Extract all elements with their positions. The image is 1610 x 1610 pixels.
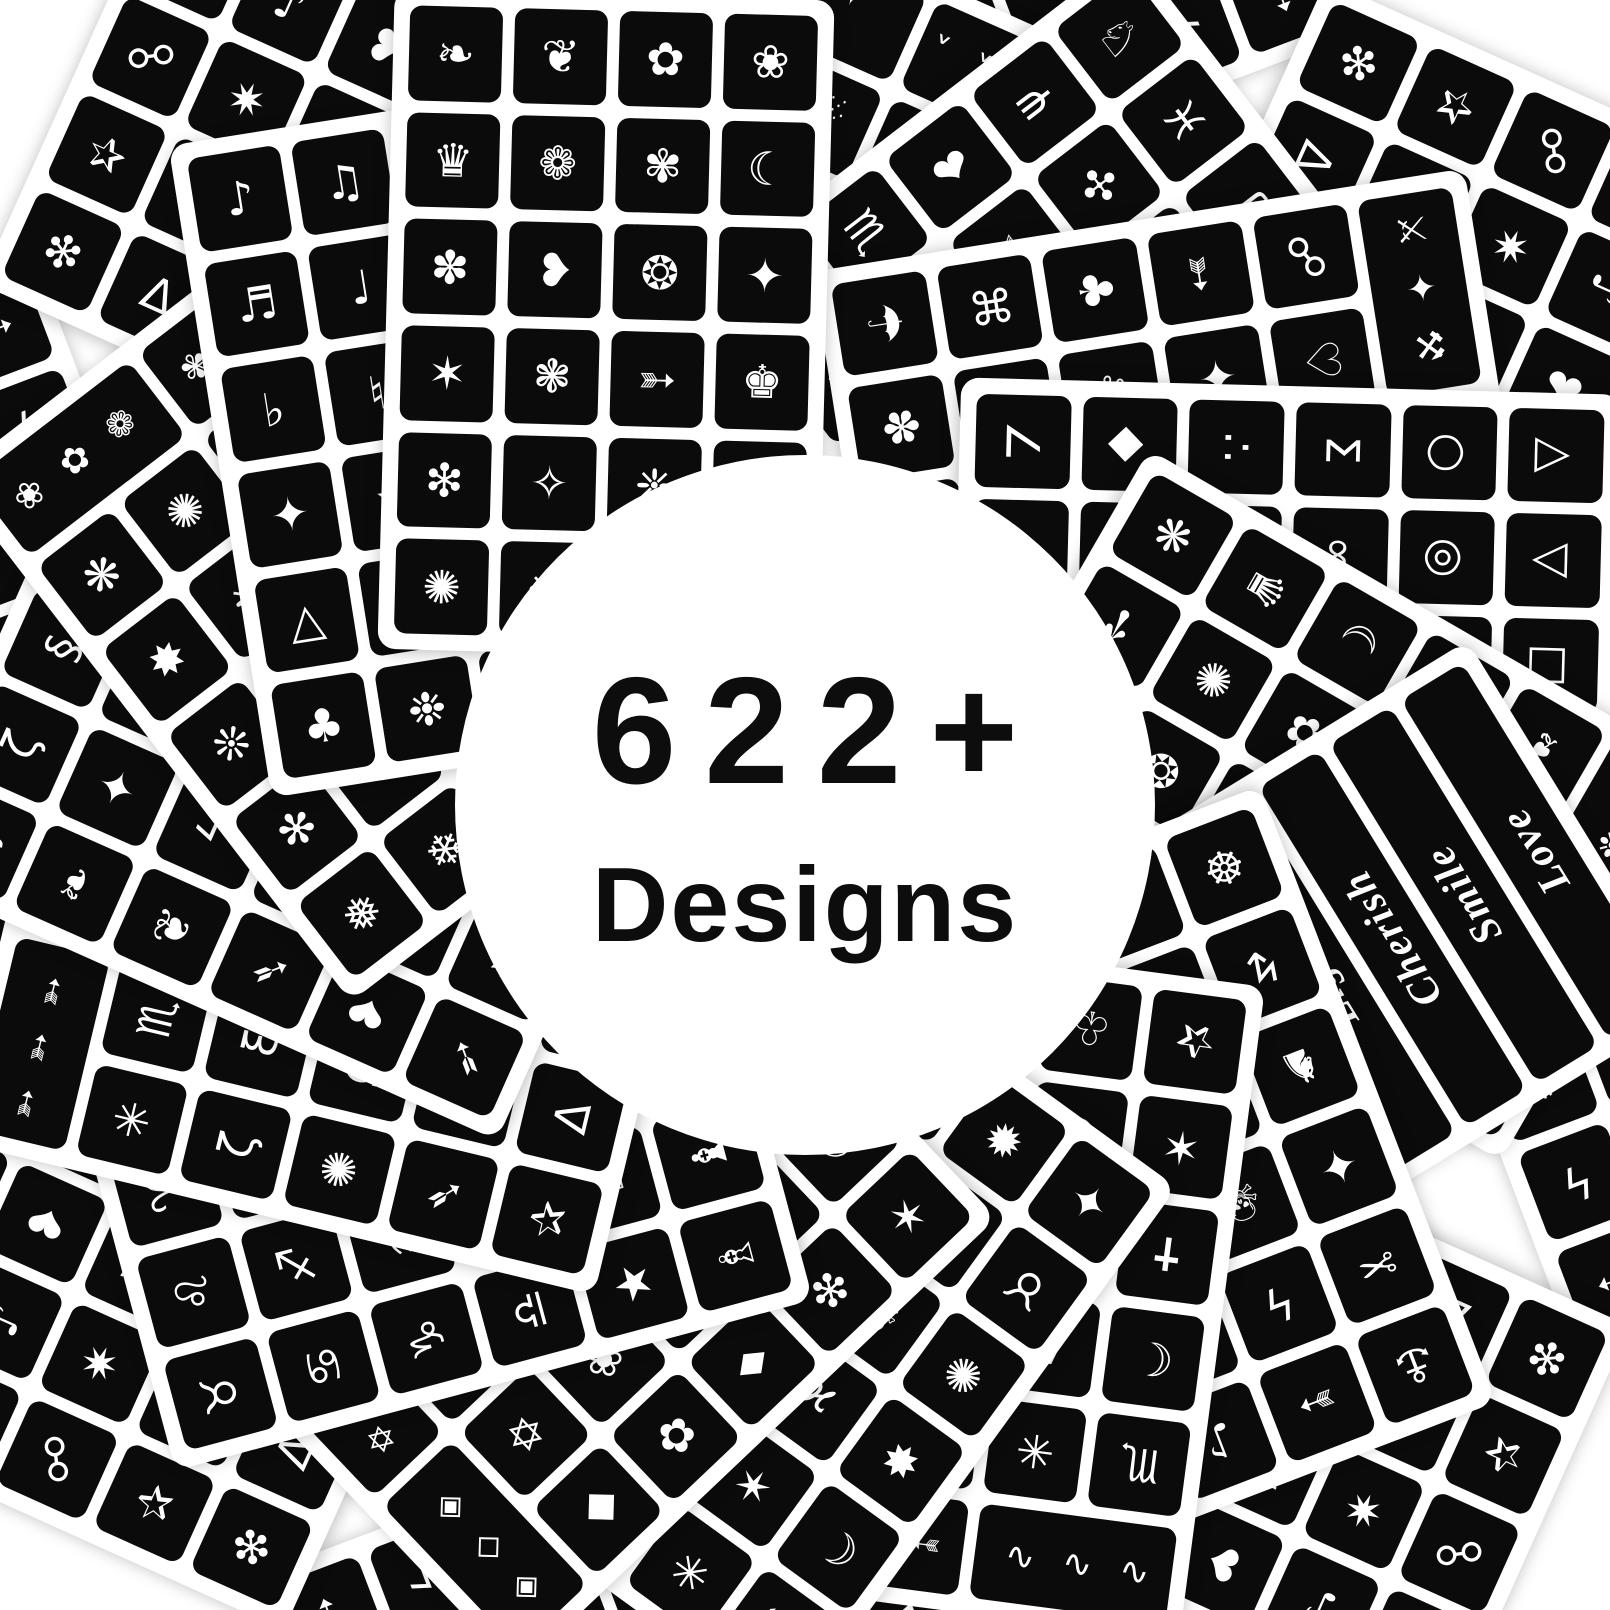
stencil-cell: ➳	[609, 331, 704, 428]
stencil-cell: ❁	[510, 115, 605, 212]
stencil-cell: ✾	[615, 117, 710, 214]
stencil-cell: ☾	[1101, 1306, 1206, 1412]
stencil-cell: ♌	[136, 1235, 252, 1349]
stencil-cell: ♛	[405, 112, 500, 209]
stencil-cell: ♋	[266, 1309, 382, 1423]
stencil-cell: ❇	[1485, 1296, 1609, 1421]
stencil-cell: ❃	[504, 328, 599, 425]
stencil-cell: ✶	[399, 325, 494, 422]
stencil-cell: ❇	[1296, 1, 1421, 125]
stencil-cell: ❀	[723, 14, 818, 111]
stencil-cell: ❧	[13, 822, 137, 945]
stencil-cell: ☂	[831, 270, 939, 377]
stencil-cell: ❇	[397, 432, 492, 529]
stencil-cell: ✰	[1393, 45, 1518, 169]
stencil-cell: ☾	[720, 120, 815, 217]
stencil-cell: ♭	[220, 355, 327, 463]
stencil-cell: ∠	[974, 394, 1071, 489]
stencil-cell: ✽	[402, 219, 497, 316]
stencil-cell: ▽	[1505, 513, 1602, 608]
stencil-cell: ✦	[717, 227, 812, 324]
stencil-cell: ☸	[1164, 806, 1285, 928]
stencil-cell: ⌘	[936, 253, 1044, 360]
stencil-cell: ✺	[394, 538, 489, 635]
stencil-cell: ♫	[290, 128, 397, 236]
stencil-cell: ☍	[1252, 203, 1360, 310]
stencil-cell: △	[253, 566, 360, 674]
stencil-cell: Σ	[1294, 402, 1391, 497]
stencil-product-photo: ✦❀♏➳☾✳❧ϟ✶♪❥✺☍✷♉❁✰✈✸♡❇Δ✹☺✦❀♏➳☾✳❧ϟ✶♪❥✺☍✷♉❁…	[0, 0, 1610, 1610]
designs-label: Designs	[592, 845, 1018, 966]
stencil-cell: ∿ ∿ ∿	[969, 1504, 1178, 1610]
stencil-cell: ✂	[1317, 1205, 1438, 1327]
stencil-cell: ➳	[1257, 1342, 1378, 1464]
stencil-cell: ❥	[507, 221, 602, 318]
designs-count: 622+	[564, 644, 1046, 819]
stencil-cell: ➶	[402, 996, 526, 1119]
stencil-cell: ✰	[490, 1163, 604, 1276]
stencil-cell: ♉	[163, 1337, 279, 1451]
stencil-cell: ζ	[179, 1088, 293, 1201]
stencil-cell: ⚓	[1355, 1304, 1476, 1426]
stencil-cell: ♚	[714, 333, 809, 430]
stencil-cell: ❇	[189, 1485, 314, 1609]
stencil-cell: ❧	[408, 5, 503, 102]
stencil-cell: ♗	[678, 1199, 794, 1313]
stencil-cell: ✰	[1143, 989, 1248, 1095]
stencil-cell: ☍	[0, 1398, 119, 1522]
stencil-cell: ⚔ ✦ ⚒	[1357, 187, 1481, 397]
stencil-cell: ϟ	[1219, 1242, 1340, 1364]
stencil-cell: △	[1508, 408, 1605, 503]
stencil-cell: ♬	[203, 250, 310, 358]
stencil-cell: ✦	[1278, 1105, 1399, 1227]
stencil-cell: ☍	[1398, 1491, 1522, 1610]
stencil-cell: ❦	[513, 8, 608, 105]
stencil-cell: ✧	[502, 435, 597, 532]
stencil-cell: ♏	[1087, 1412, 1192, 1518]
stencil-cell: ➴	[387, 1138, 501, 1251]
stencil-cell: ♪	[187, 145, 294, 253]
stencil-cell: ✺	[283, 1113, 397, 1226]
stencil-cell: ♣	[1041, 237, 1149, 344]
center-circle: 622+ Designs	[455, 455, 1155, 1155]
stencil-cell: ✿	[618, 11, 713, 108]
stencil-cell: ◎	[1398, 510, 1495, 605]
stencil-cell: ♣	[270, 671, 377, 779]
stencil-cell: ❂	[612, 224, 707, 321]
stencil-cell: ✦	[237, 461, 344, 569]
stencil-cell: ➳	[1147, 220, 1255, 327]
stencil-cell: ○	[1401, 405, 1498, 500]
stencil-cell: ♑	[369, 1281, 485, 1395]
stencil-cell: ✳	[75, 1064, 189, 1177]
stencil-cell: ϟ	[1517, 1121, 1610, 1242]
stencil-cell: ❦	[110, 865, 234, 988]
